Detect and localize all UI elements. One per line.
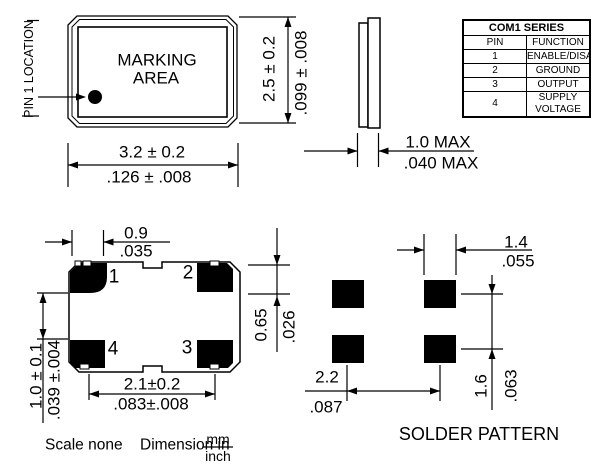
solder-pad <box>332 335 364 363</box>
dim-pad-pitch-inch: .083±.008 <box>113 396 189 413</box>
arrowhead <box>348 148 358 155</box>
technical-drawing: PIN 1 LOCATION MARKING AREA 3.2 ± 0.2 .1… <box>0 0 615 469</box>
arrowhead <box>40 293 47 303</box>
dim-pad-width-inch: .035 <box>119 243 152 260</box>
arrowhead <box>456 247 466 254</box>
dim-solder-pad-width-inch: .055 <box>501 253 534 270</box>
pad1-number: 1 <box>109 268 120 287</box>
solder-pad <box>424 335 456 363</box>
dim-row-gap-mm: 1.0 ± 0.1 <box>28 343 45 409</box>
pin-function-table: COM1 SERIES PIN FUNCTION 1 ENABLE/DISABL… <box>462 19 591 118</box>
solder-pattern <box>305 234 532 410</box>
table-title: COM1 SERIES <box>463 20 590 36</box>
arrowhead <box>89 391 99 398</box>
pin-number: 3 <box>463 78 527 92</box>
pin-number: 1 <box>463 50 527 64</box>
table-row: 4 SUPPLY VOLTAGE <box>463 92 590 118</box>
table-title-row: COM1 SERIES <box>463 20 590 36</box>
scale-label: Scale none <box>45 437 123 453</box>
arrowhead <box>68 162 78 169</box>
castellation-notch <box>80 364 89 369</box>
table-header-row: PIN FUNCTION <box>463 36 590 50</box>
arrowhead <box>285 113 292 123</box>
pin1-leader-arrow <box>76 94 86 101</box>
castellation-notch <box>210 261 219 266</box>
col-header-pin: PIN <box>463 36 527 50</box>
arrowhead <box>104 239 114 246</box>
pin-function: SUPPLY VOLTAGE <box>527 92 591 118</box>
unit-mm-label: mm <box>206 432 229 446</box>
dim-solder-pad-width-mm: 1.4 <box>504 234 528 251</box>
dim-width-inch: .126 ± .008 <box>107 169 192 186</box>
marking-area-line2: AREA <box>133 70 179 87</box>
pad3-number: 3 <box>182 339 193 358</box>
arrowhead <box>274 296 281 306</box>
dim-thickness-mm: 1.0 MAX <box>405 134 470 151</box>
pin1-location-label: PIN 1 LOCATION <box>23 20 36 118</box>
arrowhead <box>274 255 281 265</box>
dim-width-mm: 3.2 ± 0.2 <box>119 144 185 161</box>
castellation-notch <box>83 261 91 266</box>
arrowhead <box>228 162 238 169</box>
side-profile-lid <box>359 23 368 127</box>
arrowhead <box>489 284 496 294</box>
arrowhead <box>62 239 72 246</box>
dim-thickness-inch: .040 MAX <box>404 155 479 172</box>
table-row: 3 OUTPUT <box>463 78 590 92</box>
dim-row-gap-inch: .039 ±.004 <box>46 340 63 420</box>
table-row: 1 ENABLE/DISABLE <box>463 50 590 64</box>
dim-height-inch: .099 ± .008 <box>293 31 310 116</box>
marking-area-line1: MARKING <box>117 52 196 69</box>
dim-pad-width-mm: 0.9 <box>124 225 148 242</box>
dim-pad-pitch-mm: 2.1±0.2 <box>124 376 181 393</box>
arrowhead <box>430 388 440 395</box>
solder-pad <box>424 280 456 308</box>
pin-number: 4 <box>463 92 527 118</box>
arrowhead <box>379 148 389 155</box>
unit-inch-label: inch <box>205 449 231 463</box>
pad-2 <box>197 263 233 292</box>
pin1-dot <box>88 90 102 104</box>
solder-pad <box>332 280 364 308</box>
pin-function: GROUND <box>527 64 591 78</box>
arrowhead <box>40 329 47 339</box>
arrowhead <box>205 391 215 398</box>
dim-pad-height-inch: .026 <box>281 310 298 343</box>
arrowhead <box>285 17 292 27</box>
castellation-notch <box>210 364 219 369</box>
dim-pad-height-mm: 0.65 <box>253 308 270 341</box>
pad4-number: 4 <box>108 340 119 359</box>
table-row: 2 GROUND <box>463 64 590 78</box>
pin-number: 2 <box>463 64 527 78</box>
arrowhead <box>489 349 496 359</box>
solder-pattern-title: SOLDER PATTERN <box>399 425 559 443</box>
dim-height-mm: 2.5 ± 0.2 <box>261 36 278 102</box>
side-profile-body <box>368 18 380 128</box>
pad2-number: 2 <box>183 264 194 283</box>
castellation-notch <box>75 261 81 266</box>
dim-solder-row-pitch-mm: 1.6 <box>473 374 490 398</box>
dim-solder-col-pitch-inch: .087 <box>309 399 342 416</box>
pin-function: ENABLE/DISABLE <box>527 50 591 64</box>
pin-function: OUTPUT <box>527 78 591 92</box>
col-header-function: FUNCTION <box>527 36 591 50</box>
arrowhead <box>347 388 357 395</box>
dim-solder-row-pitch-inch: .063 <box>503 369 520 402</box>
pad-1 <box>70 263 107 293</box>
dim-solder-col-pitch-mm: 2.2 <box>315 369 339 386</box>
arrowhead <box>414 247 424 254</box>
